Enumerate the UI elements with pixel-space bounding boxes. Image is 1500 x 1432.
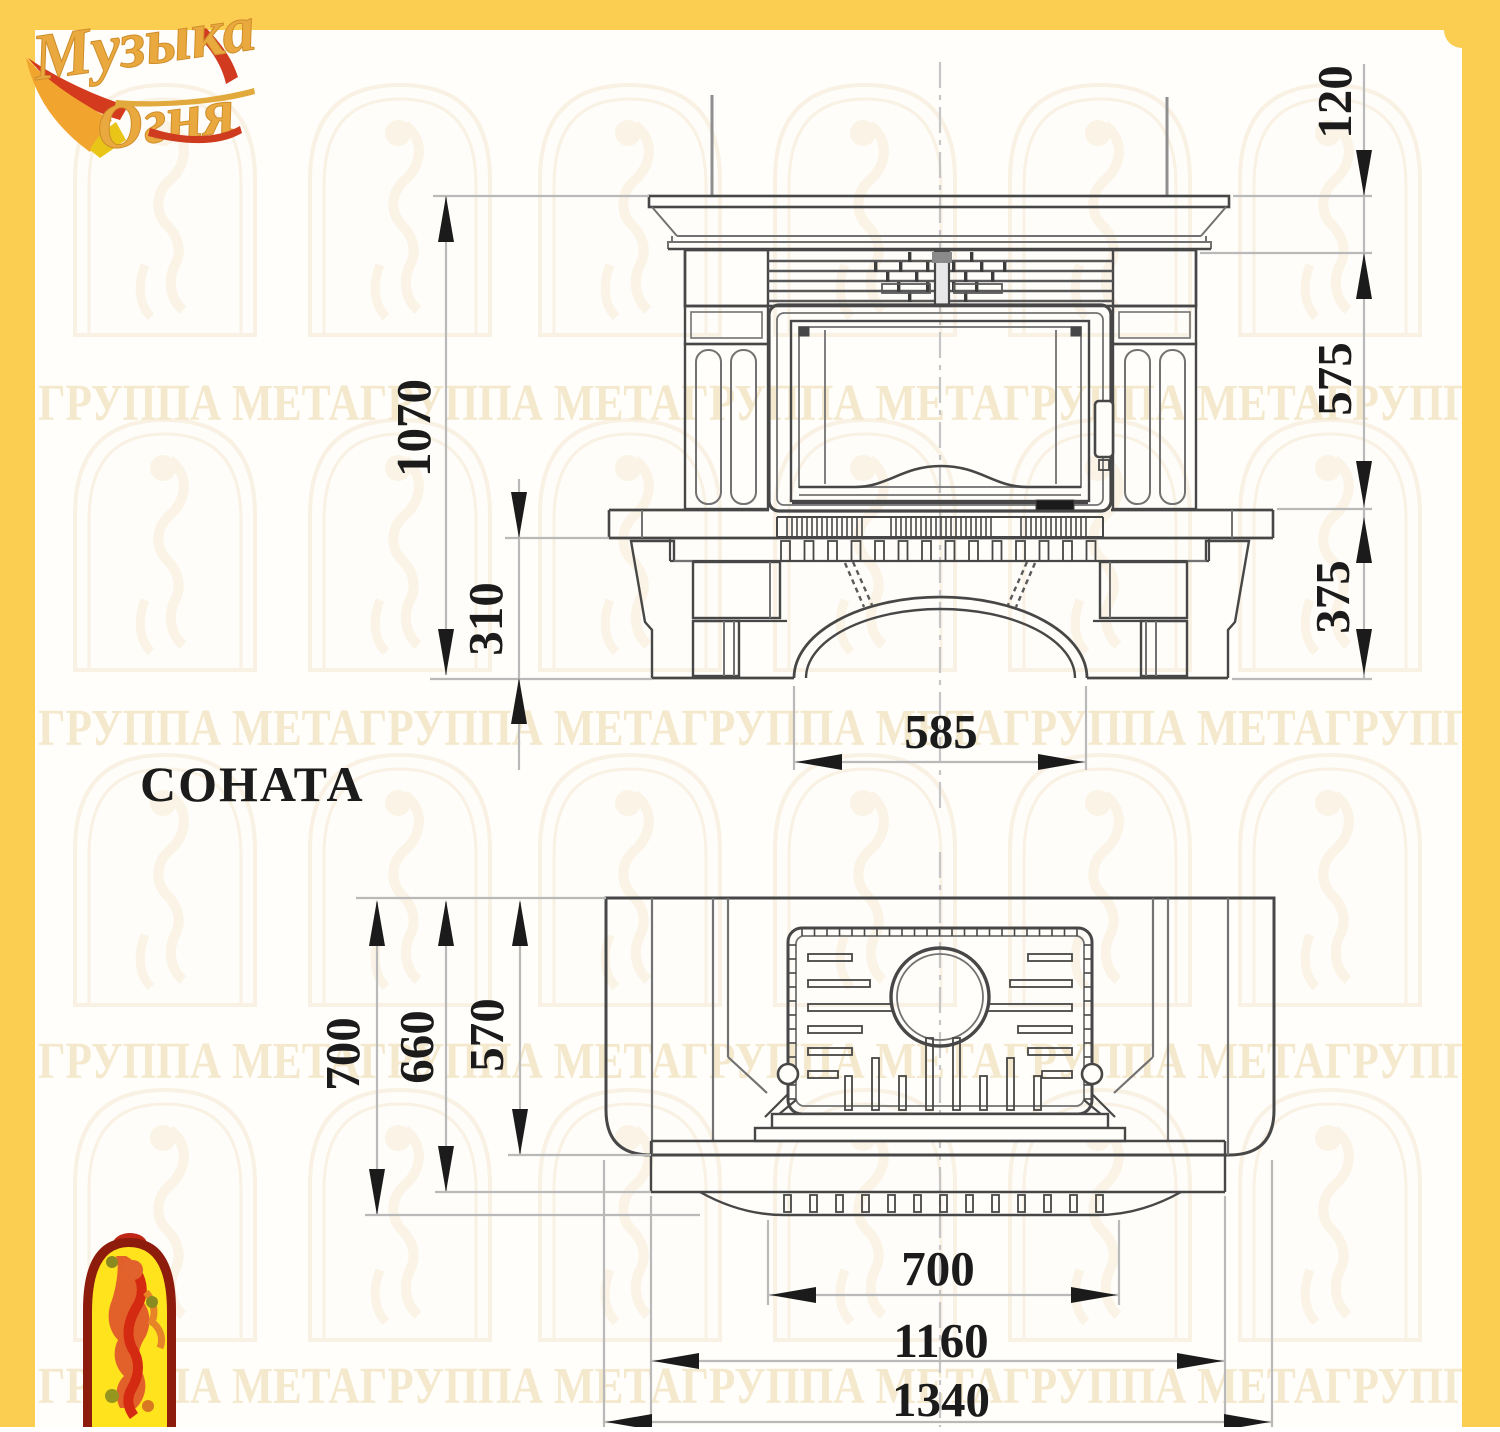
svg-text:ГРУППА МЕТАГРУППА МЕТАГРУППА М: ГРУППА МЕТАГРУППА МЕТАГРУППА МЕТАГРУППА … — [38, 1358, 1500, 1415]
svg-text:ГРУППА МЕТАГРУППА МЕТАГРУППА М: ГРУППА МЕТАГРУППА МЕТАГРУППА МЕТАГРУППА … — [38, 1033, 1500, 1090]
svg-text:1160: 1160 — [893, 1313, 988, 1368]
svg-text:120: 120 — [1307, 65, 1362, 139]
svg-text:700: 700 — [315, 1017, 370, 1091]
svg-text:570: 570 — [459, 998, 514, 1072]
svg-text:700: 700 — [901, 1241, 975, 1296]
svg-text:310: 310 — [458, 582, 513, 656]
svg-text:1340: 1340 — [892, 1372, 990, 1427]
svg-text:ГРУППА МЕТАГРУППА МЕТАГРУППА М: ГРУППА МЕТАГРУППА МЕТАГРУППА МЕТАГРУППА … — [38, 700, 1500, 757]
svg-text:660: 660 — [389, 1010, 444, 1084]
svg-text:585: 585 — [904, 704, 978, 759]
svg-text:375: 375 — [1305, 560, 1360, 634]
svg-text:575: 575 — [1307, 342, 1362, 416]
svg-text:СОНАТА: СОНАТА — [140, 756, 365, 812]
svg-text:1070: 1070 — [386, 379, 441, 477]
